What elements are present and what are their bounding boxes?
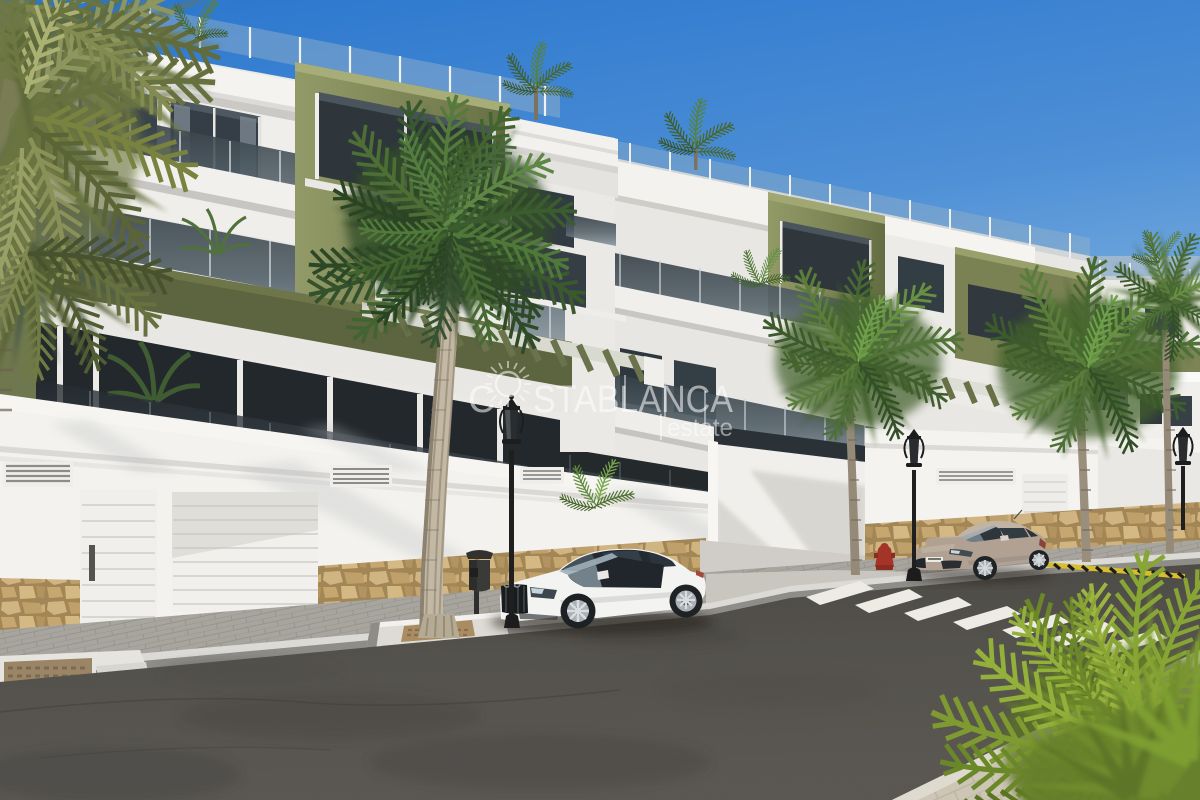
- svg-text:estate: estate: [667, 414, 733, 442]
